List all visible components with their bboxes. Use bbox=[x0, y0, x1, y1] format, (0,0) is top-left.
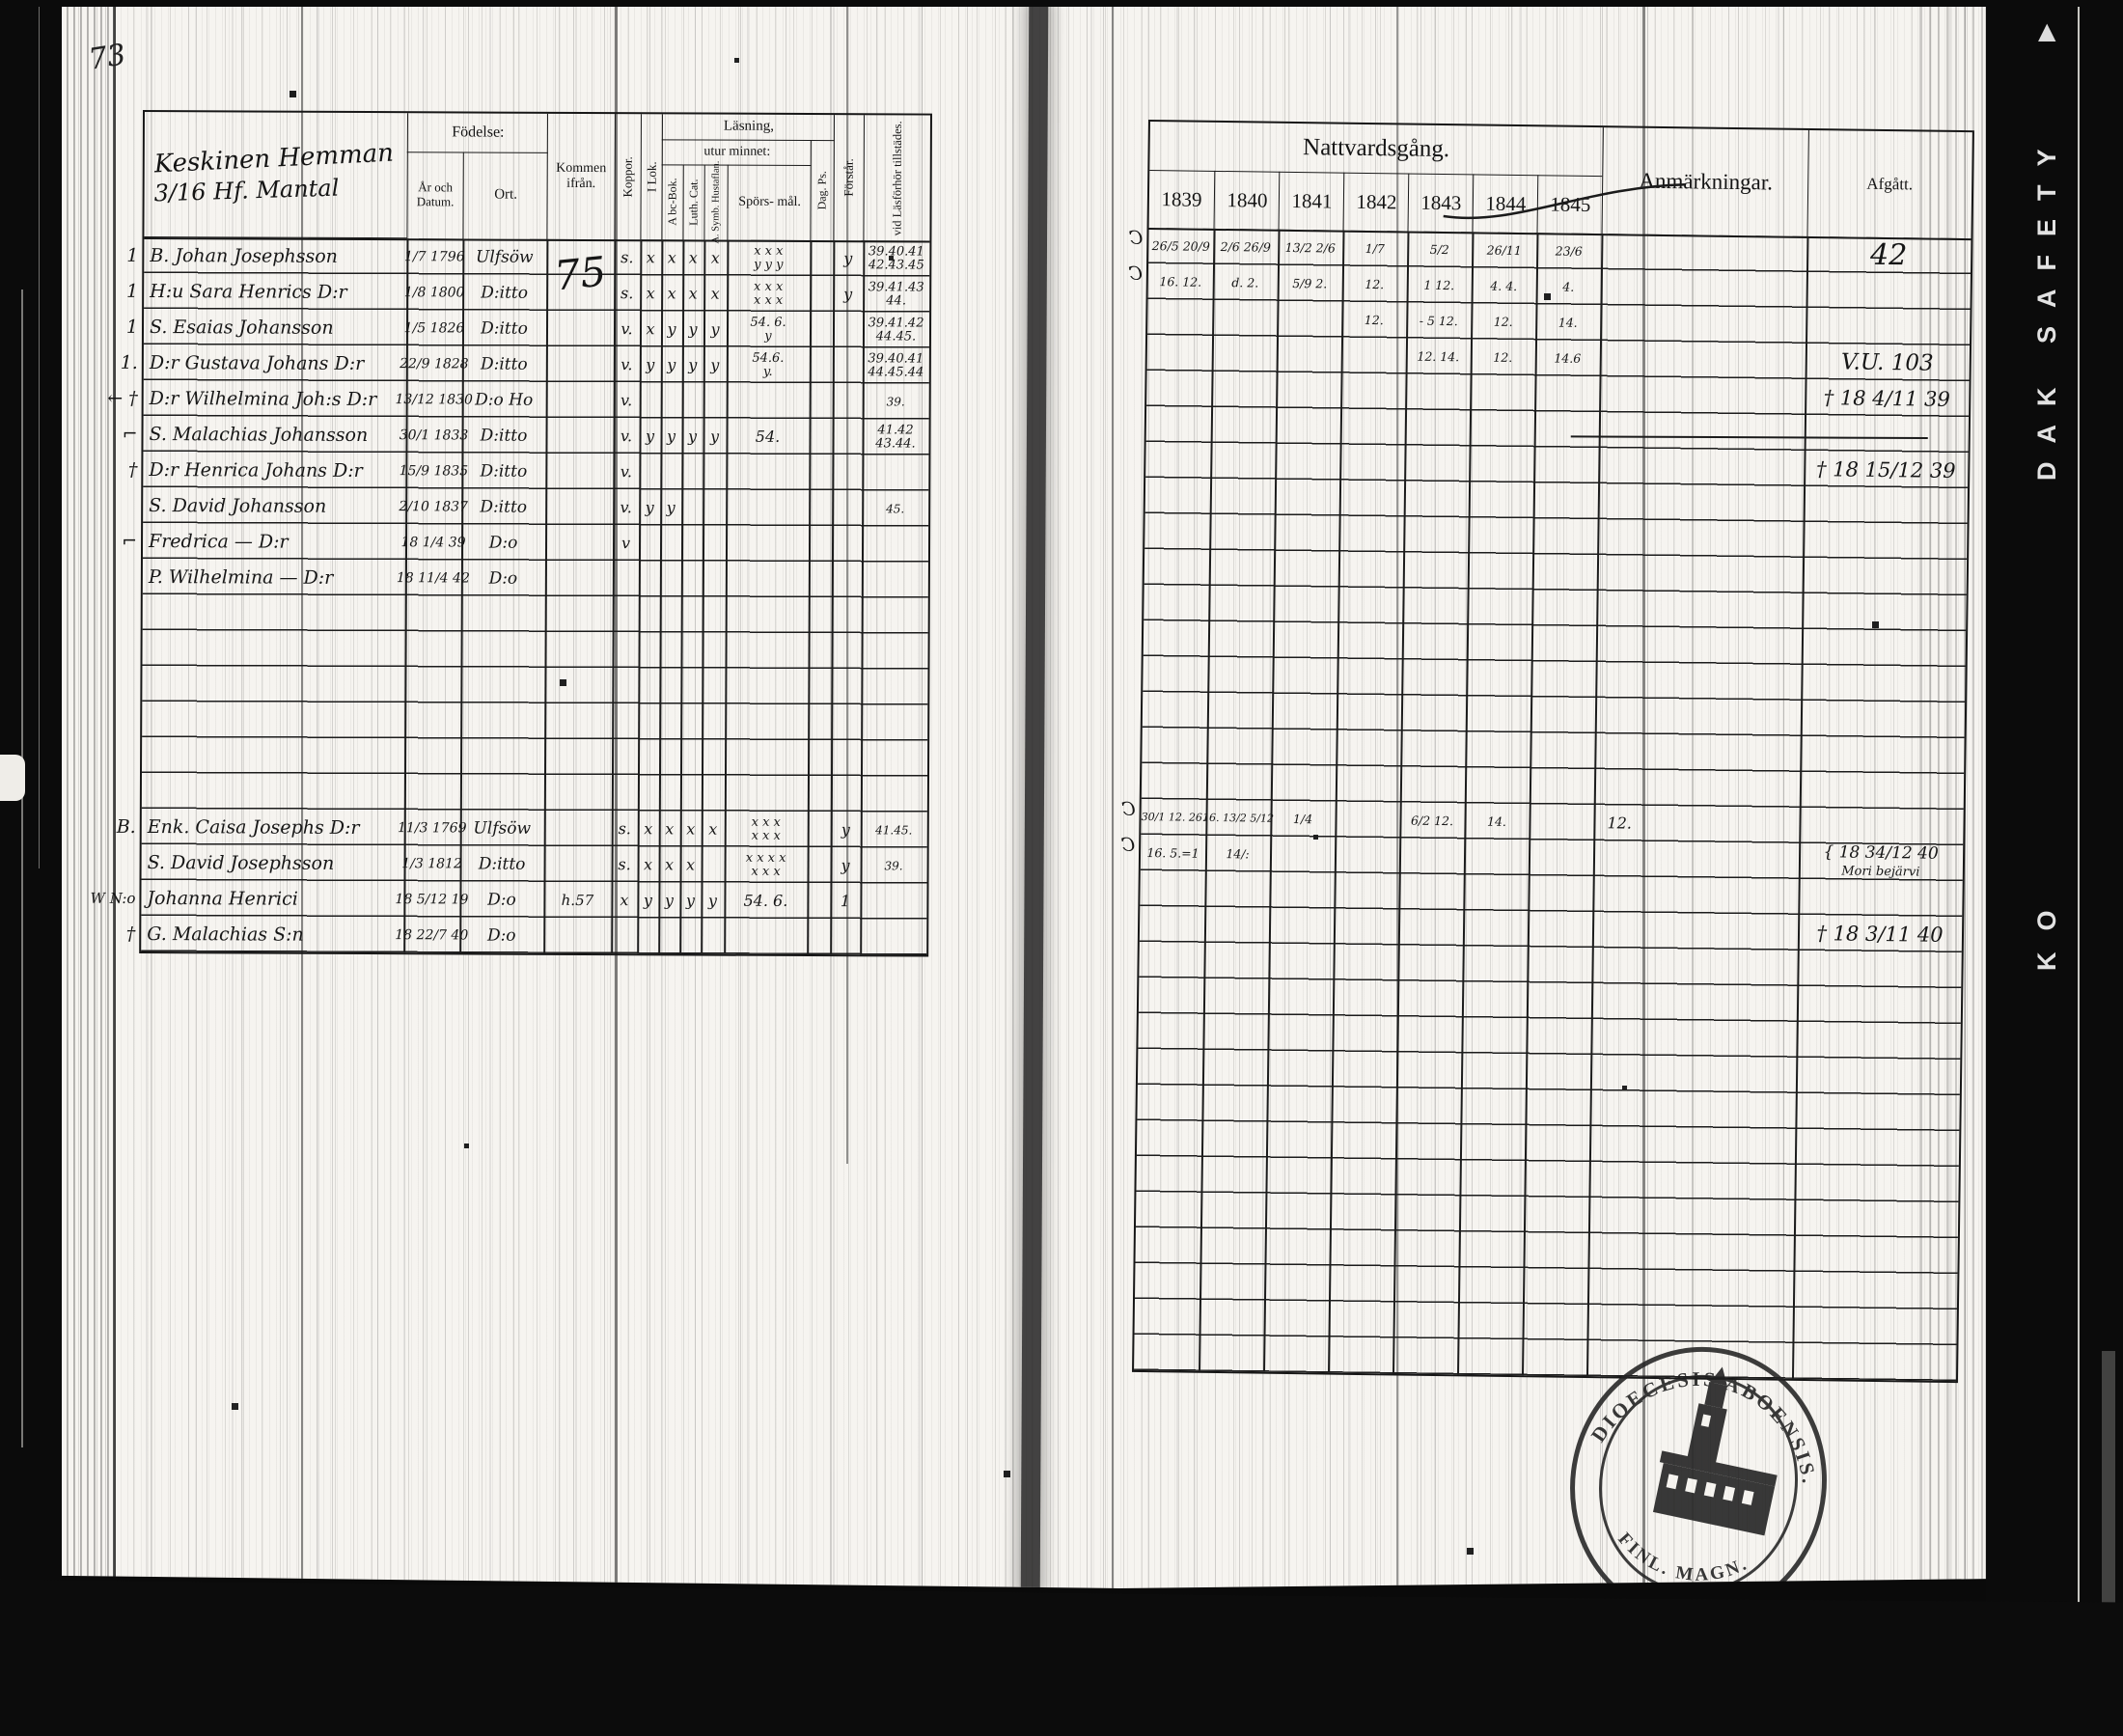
birth-date: 18 5/12 19 bbox=[403, 881, 459, 917]
birth-date: 30/1 1833 bbox=[405, 417, 461, 453]
luth-cat-mark: y bbox=[682, 346, 703, 382]
sporsmal-line2: y. bbox=[763, 365, 773, 378]
koppor-mark: v. bbox=[614, 311, 640, 346]
luth-cat-mark: y bbox=[681, 418, 703, 454]
i-lok-mark: x bbox=[640, 275, 661, 311]
communion-1844: 14. bbox=[1465, 803, 1528, 840]
margin-mark: C bbox=[1108, 835, 1135, 870]
margin-mark: † bbox=[89, 452, 137, 487]
attendance-years: 41.45. bbox=[861, 812, 927, 847]
header-year-1842: 1842 bbox=[1343, 173, 1410, 232]
forstar-mark: y bbox=[831, 812, 861, 847]
birth-date: 15/9 1835 bbox=[405, 453, 461, 488]
sporsmal-marks: 54. bbox=[726, 419, 809, 455]
margin-mark: ⌐ bbox=[89, 523, 137, 559]
birth-place: D:o bbox=[461, 560, 545, 595]
birth-place: D:itto bbox=[462, 274, 546, 310]
header-koppor: Koppor. bbox=[614, 114, 642, 239]
table-row: 1 B. Johan Josephsson 1/7 1796 Ulfsöw 75… bbox=[144, 237, 929, 277]
sporsmal-line1: x x x bbox=[754, 280, 783, 293]
person-name: Johanna Henrici bbox=[147, 880, 403, 917]
afgatt-note: V.U. 103 bbox=[1807, 344, 1968, 381]
header-i-lok: I Lok. bbox=[640, 114, 663, 239]
communion-1845: 14. bbox=[1536, 304, 1599, 341]
attendance-line1: 41.42 bbox=[877, 424, 913, 437]
attendance-years: 39. bbox=[863, 383, 929, 419]
communion-1839: 16. 12. bbox=[1149, 263, 1212, 300]
farm-title-line1: Keskinen Hemman bbox=[153, 139, 394, 179]
table-row: P. Wilhelmina — D:r 18 11/4 42 D:o bbox=[143, 559, 928, 598]
header-koppor-label: Koppor. bbox=[621, 156, 636, 197]
sporsmal-line1: x x x bbox=[752, 815, 781, 829]
table-row: 1 S. Esaias Johansson 1/5 1826 D:itto v.… bbox=[144, 309, 929, 348]
sporsmal-marks: x x xx x x bbox=[725, 812, 808, 847]
attendance-line1: 39.40.41 bbox=[868, 245, 924, 259]
table-row: B. Enk. Caisa Josephs D:r 11/3 1769 Ulfs… bbox=[142, 809, 927, 848]
abc-mark: x bbox=[659, 811, 680, 846]
birth-place: D:o bbox=[459, 881, 543, 917]
person-name: G. Malachias S:n bbox=[147, 916, 403, 952]
communion-1840: d. 2. bbox=[1214, 264, 1277, 301]
scanned-page-sheet: 73 Keskinen Hemman 3/16 Hf. Mantal Födel… bbox=[60, 6, 1986, 1588]
header-symb-hustaflan: A. Symb. Hustaflan. bbox=[703, 165, 728, 240]
abc-mark: y bbox=[661, 346, 682, 382]
header-sporsmal: Spörs- mål. bbox=[727, 165, 811, 240]
film-edge-scratch bbox=[39, 0, 40, 868]
birth-date: 1/7 1796 bbox=[406, 238, 462, 274]
birth-place: D:o bbox=[459, 917, 543, 952]
table-row: ← † D:r Wilhelmina Joh:s D:r 13/12 1830 … bbox=[144, 380, 929, 420]
farm-title-box: Keskinen Hemman 3/16 Hf. Mantal bbox=[144, 112, 407, 238]
margin-mark: W N:o bbox=[87, 880, 135, 916]
koppor-mark: s. bbox=[614, 239, 640, 275]
birth-date: 18 11/4 42 bbox=[405, 560, 461, 595]
koppor-mark: v. bbox=[613, 489, 639, 525]
person-name: D:r Wilhelmina Joh:s D:r bbox=[150, 380, 406, 417]
margin-mark: 1 bbox=[90, 309, 138, 344]
abc-mark: x bbox=[661, 239, 682, 275]
attendance-years: 39.41.4344. bbox=[863, 276, 929, 312]
handwritten-swoosh bbox=[1439, 176, 1691, 225]
hustaflan-mark: y bbox=[703, 312, 727, 347]
margin-mark: 1. bbox=[90, 344, 138, 380]
hustaflan-mark: y bbox=[703, 419, 726, 455]
attendance-years: 39.40.4144.45.44 bbox=[863, 347, 929, 383]
communion-1844: 4. 4. bbox=[1473, 267, 1535, 304]
margin-mark: C bbox=[1108, 799, 1135, 835]
attendance-years: 39. bbox=[861, 847, 927, 883]
header-dag-ps: Dag. Ps. bbox=[810, 140, 834, 240]
stamp-arc-bottom-text: FINL. MAGN. bbox=[1609, 1527, 1755, 1598]
person-name: S. David Johansson bbox=[149, 487, 405, 524]
birth-place: D:itto bbox=[461, 453, 545, 488]
koppor-mark: s. bbox=[612, 811, 638, 846]
communion-1841: 13/2 2/6 bbox=[1279, 230, 1341, 266]
communion-1845: 23/6 bbox=[1537, 233, 1600, 269]
header-year-1840: 1840 bbox=[1214, 171, 1281, 230]
person-name: S. David Josephsson bbox=[148, 844, 404, 881]
sporsmal-line2: x x x bbox=[752, 829, 781, 842]
attendance-line1: 39.40.41 bbox=[868, 352, 924, 366]
communion-1842: 12. bbox=[1342, 302, 1405, 339]
person-name: Fredrica — D:r bbox=[149, 523, 405, 560]
page-number: 73 bbox=[86, 38, 127, 77]
film-edge-notch bbox=[0, 755, 25, 801]
birth-place: D:itto bbox=[462, 345, 546, 381]
birth-place: D:o bbox=[461, 524, 545, 560]
attendance-line1: 39.41.43 bbox=[868, 281, 924, 294]
birth-date: 1/8 1800 bbox=[406, 274, 462, 310]
header-abc-bok: A bc-Bok. bbox=[661, 164, 683, 239]
birth-date: 18 22/7 40 bbox=[403, 917, 459, 952]
communion-1840: 2/6 26/9 bbox=[1214, 229, 1277, 265]
right-table-body: C 26/5 20/9 2/6 26/9 13/2 2/6 1/7 5/2 26… bbox=[1134, 228, 1971, 1381]
communion-1839: 16. 5.=1 bbox=[1142, 835, 1204, 871]
sporsmal-line1: x x x x bbox=[746, 851, 786, 865]
margin-mark: C bbox=[1116, 263, 1143, 299]
attendance-years: 41.4243.44. bbox=[862, 419, 928, 455]
attendance-line1: 39.41.42 bbox=[868, 317, 924, 330]
film-edge-scratch bbox=[21, 289, 23, 1447]
table-row: 1. D:r Gustava Johans D:r 22/9 1828 D:it… bbox=[144, 344, 929, 384]
i-lok-mark: y bbox=[637, 882, 658, 918]
film-brand-text-lower: KO bbox=[2032, 865, 2062, 971]
birth-place: D:itto bbox=[461, 488, 545, 524]
abc-mark: x bbox=[659, 846, 680, 882]
birth-place: D:itto bbox=[460, 845, 544, 881]
header-nattvardsgang: Nattvardsgång. bbox=[1149, 122, 1603, 177]
header-forstar-label: Förstår. bbox=[842, 158, 857, 196]
sporsmal-marks: x x x xx x x bbox=[725, 847, 808, 883]
sporsmal-line2: y bbox=[764, 329, 771, 343]
attendance-years: 45. bbox=[862, 490, 928, 526]
header-luth-cat: Luth. Cat. bbox=[682, 164, 704, 239]
header-utur-minnet: utur minnet: bbox=[662, 139, 812, 166]
person-name: H:u Sara Henrics D:r bbox=[150, 273, 406, 310]
person-name: D:r Henrica Johans D:r bbox=[149, 452, 405, 488]
margin-mark: 1 bbox=[90, 273, 138, 309]
afgatt-line1: { 18 34/12 40 bbox=[1823, 843, 1939, 864]
communion-1843: - 5 12. bbox=[1407, 303, 1470, 340]
luth-cat-mark: x bbox=[682, 275, 703, 311]
sporsmal-line2: x x x bbox=[754, 293, 783, 307]
left-table-body: 1 B. Johan Josephsson 1/7 1796 Ulfsöw 75… bbox=[141, 237, 929, 955]
communion-1842: 1/7 bbox=[1343, 231, 1406, 267]
birth-date: 1/3 1812 bbox=[404, 845, 460, 881]
birth-place: D:o Ho bbox=[462, 381, 546, 417]
communion-1840: 16. 13/2 5/12 bbox=[1206, 800, 1269, 837]
header-abc-bok-label: A bc-Bok. bbox=[667, 179, 680, 226]
sporsmal-marks: x x xy y y bbox=[727, 240, 810, 276]
birth-date: 1/5 1826 bbox=[406, 310, 462, 345]
birth-date: 13/12 1830 bbox=[406, 381, 462, 417]
table-row: ⌐ Fredrica — D:r 18 1/4 39 D:o v bbox=[143, 523, 928, 563]
sporsmal-marks: 54. 6. bbox=[724, 883, 807, 919]
margin-mark: 1 bbox=[90, 237, 138, 273]
luth-cat-mark: x bbox=[680, 811, 702, 846]
sporsmal-line2: y y y bbox=[754, 258, 783, 271]
left-table-household-examination: Keskinen Hemman 3/16 Hf. Mantal Födelse:… bbox=[139, 110, 932, 957]
communion-1839: 30/1 12. 26. bbox=[1142, 799, 1204, 836]
koppor-mark: v. bbox=[614, 382, 640, 418]
header-vid-lasforhor: vid Läsförhör tillstädes. bbox=[863, 115, 931, 240]
header-lasning: Läsning, bbox=[662, 114, 835, 141]
attendance-years: 39.40.4142.43.45 bbox=[863, 240, 929, 276]
header-i-lok-label: I Lok. bbox=[645, 161, 659, 192]
communion-1844: 12. bbox=[1472, 339, 1534, 375]
koppor-mark: v. bbox=[613, 418, 639, 454]
person-name: S. Malachias Johansson bbox=[149, 416, 405, 453]
svg-text:FINL. MAGN.: FINL. MAGN. bbox=[1609, 1527, 1755, 1598]
attendance-line2: 42.43.45 bbox=[868, 259, 924, 272]
communion-1845: 4. bbox=[1537, 268, 1600, 305]
luth-cat-mark: y bbox=[682, 311, 703, 346]
luth-cat-mark: x bbox=[682, 239, 703, 275]
communion-1843: 5/2 bbox=[1408, 232, 1471, 268]
table-row: † G. Malachias S:n 18 22/7 40 D:o bbox=[141, 916, 926, 955]
birth-place: Ulfsöw bbox=[460, 810, 544, 845]
microfilm-scan-viewport: 73 Keskinen Hemman 3/16 Hf. Mantal Födel… bbox=[0, 0, 2123, 1736]
header-kommen-ifran: Kommen ifrån. bbox=[546, 114, 615, 239]
sporsmal-marks: x x xx x x bbox=[727, 276, 810, 312]
koppor-mark: s. bbox=[612, 846, 638, 882]
i-lok-mark: y bbox=[640, 346, 661, 382]
hustaflan-mark: y bbox=[701, 883, 724, 919]
afgatt-note: 42 bbox=[1808, 236, 1969, 274]
kommen-ifran-value: h.57 bbox=[543, 882, 611, 918]
communion-1843: 1 12. bbox=[1408, 267, 1471, 304]
abc-mark: y bbox=[660, 418, 681, 454]
right-table-header: Nattvardsgång. 1839 1840 1841 1842 1843 … bbox=[1149, 122, 1972, 240]
table-row: † D:r Henrica Johans D:r 15/9 1835 D:itt… bbox=[143, 452, 928, 491]
abc-mark: x bbox=[661, 275, 682, 311]
margin-mark: C bbox=[1116, 228, 1143, 263]
forstar-mark: y bbox=[833, 240, 863, 276]
film-scratch bbox=[1112, 6, 1114, 1588]
header-year-1839: 1839 bbox=[1149, 170, 1215, 229]
header-symb-hustaflan-label: A. Symb. Hustaflan. bbox=[710, 161, 722, 244]
hustaflan-mark: x bbox=[702, 812, 725, 847]
person-name: B. Johan Josephsson bbox=[150, 237, 406, 274]
afgatt-note: † 18 3/11 40 bbox=[1800, 915, 1960, 952]
sporsmal-line1: x x x bbox=[754, 244, 783, 258]
forstar-mark bbox=[833, 312, 863, 347]
table-row: S. David Johansson 2/10 1837 D:itto v. y… bbox=[143, 487, 928, 527]
film-edge-left bbox=[0, 0, 62, 1736]
abc-mark: y bbox=[661, 311, 682, 346]
person-name: D:r Gustava Johans D:r bbox=[150, 344, 406, 381]
anmarkningar-note: 12. bbox=[1595, 805, 1808, 843]
header-ar-och-datum: År och Datum. bbox=[406, 152, 462, 238]
birth-date: 11/3 1769 bbox=[404, 810, 460, 845]
margin-mark: B. bbox=[88, 809, 136, 844]
afgatt-note: { 18 34/12 40Mori bejärvi bbox=[1801, 843, 1961, 881]
attendance-line2: 43.44. bbox=[875, 437, 915, 451]
i-lok-mark: x bbox=[638, 811, 659, 846]
header-dag-ps-label: Dag. Ps. bbox=[816, 171, 830, 209]
abc-mark: y bbox=[660, 489, 681, 525]
birth-place: D:itto bbox=[461, 417, 545, 453]
person-name: Enk. Caisa Josephs D:r bbox=[148, 809, 404, 845]
margin-mark: ← † bbox=[90, 380, 138, 416]
table-row: S. David Josephsson 1/3 1812 D:itto s. x… bbox=[142, 844, 927, 884]
communion-1843: 12. 14. bbox=[1407, 339, 1470, 375]
book-gutter-shadow bbox=[1021, 6, 1049, 1588]
header-fodelse: Födelse: bbox=[407, 113, 548, 153]
communion-1844: 12. bbox=[1472, 303, 1534, 340]
communion-1839: 26/5 20/9 bbox=[1149, 228, 1212, 264]
hustaflan-mark: x bbox=[703, 240, 727, 276]
sporsmal-marks: 54. 6.y bbox=[727, 312, 810, 347]
sporsmal-line1: 54.6. bbox=[752, 351, 784, 365]
koppor-mark: v. bbox=[614, 346, 640, 382]
table-row: W N:o Johanna Henrici 18 5/12 19 D:o h.5… bbox=[141, 880, 926, 920]
right-table-communion: Nattvardsgång. 1839 1840 1841 1842 1843 … bbox=[1132, 120, 1974, 1383]
forstar-mark: y bbox=[833, 276, 863, 312]
left-table-header: Keskinen Hemman 3/16 Hf. Mantal Födelse:… bbox=[144, 112, 930, 243]
sporsmal-marks: 54.6.y. bbox=[727, 347, 810, 383]
i-lok-mark: y bbox=[639, 418, 660, 454]
header-vid-lasforhor-label: vid Läsförhör tillstädes. bbox=[891, 119, 905, 236]
forstar-mark bbox=[833, 347, 863, 383]
birth-place: Ulfsöw bbox=[462, 238, 546, 274]
header-year-1841: 1841 bbox=[1279, 172, 1345, 231]
film-triangle-marker: ▲ bbox=[2038, 17, 2055, 44]
header-afgatt: Afgått. bbox=[1806, 130, 1971, 238]
birth-date: 22/9 1828 bbox=[406, 345, 462, 381]
communion-1845: 14.6 bbox=[1536, 340, 1599, 376]
i-lok-mark: y bbox=[639, 489, 660, 525]
koppor-mark: v. bbox=[613, 454, 639, 489]
table-row: 1 H:u Sara Henrics D:r 1/8 1800 D:itto s… bbox=[144, 273, 929, 313]
birth-place: D:itto bbox=[462, 310, 546, 345]
sporsmal-line1: 54. 6. bbox=[750, 316, 786, 329]
attendance-years: 39.41.4244.45. bbox=[863, 312, 929, 347]
farm-title-line2: 3/16 Hf. Mantal bbox=[153, 175, 339, 207]
film-edge-bottom bbox=[0, 1571, 2123, 1736]
person-name: P. Wilhelmina — D:r bbox=[149, 559, 405, 595]
i-lok-mark: x bbox=[640, 239, 661, 275]
forstar-mark: y bbox=[831, 847, 861, 883]
afgatt-note: † 18 4/11 39 bbox=[1806, 379, 1967, 417]
i-lok-mark: x bbox=[638, 846, 659, 882]
birth-date: 18 1/4 39 bbox=[405, 524, 461, 560]
table-row: ⌐ S. Malachias Johansson 30/1 1833 D:itt… bbox=[143, 416, 928, 455]
koppor-mark: s. bbox=[614, 275, 640, 311]
communion-1842: 12. bbox=[1343, 266, 1406, 303]
luth-cat-mark: x bbox=[680, 846, 702, 882]
header-luth-cat-label: Luth. Cat. bbox=[688, 179, 702, 225]
attendance-line2: 44. bbox=[886, 294, 906, 308]
hustaflan-mark: x bbox=[703, 276, 727, 312]
film-edge-top bbox=[0, 0, 2123, 7]
koppor-mark: x bbox=[611, 882, 637, 918]
communion-1840: 14/: bbox=[1206, 836, 1269, 872]
sporsmal-line2: x x x bbox=[751, 865, 780, 878]
communion-1843: 6/2 12. bbox=[1400, 802, 1463, 839]
birth-date: 2/10 1837 bbox=[405, 488, 461, 524]
afgatt-note: † 18 15/12 39 bbox=[1806, 451, 1966, 488]
abc-mark: y bbox=[658, 882, 679, 918]
luth-cat-mark: y bbox=[679, 882, 701, 918]
margin-mark: ⌐ bbox=[89, 416, 137, 452]
margin-mark: † bbox=[87, 916, 135, 951]
header-forstar: Förstår. bbox=[833, 115, 865, 240]
attendance-line2: 44.45. bbox=[876, 330, 916, 344]
film-edge-line bbox=[2078, 0, 2080, 1736]
header-ort: Ort. bbox=[462, 152, 547, 238]
communion-1841: 5/9 2. bbox=[1279, 265, 1341, 302]
koppor-mark: v bbox=[613, 525, 639, 561]
forstar-mark: 1 bbox=[830, 883, 860, 919]
afgatt-line2: Mori bejärvi bbox=[1841, 862, 1919, 881]
communion-1844: 26/11 bbox=[1473, 232, 1535, 268]
communion-1841: 1/4 bbox=[1271, 801, 1334, 838]
hustaflan-mark: y bbox=[703, 347, 727, 383]
i-lok-mark: x bbox=[640, 311, 661, 346]
attendance-line2: 44.45.44 bbox=[868, 366, 924, 379]
film-brand-text-upper: DAK SAFETY bbox=[2032, 44, 2062, 481]
person-name: S. Esaias Johansson bbox=[150, 309, 406, 345]
